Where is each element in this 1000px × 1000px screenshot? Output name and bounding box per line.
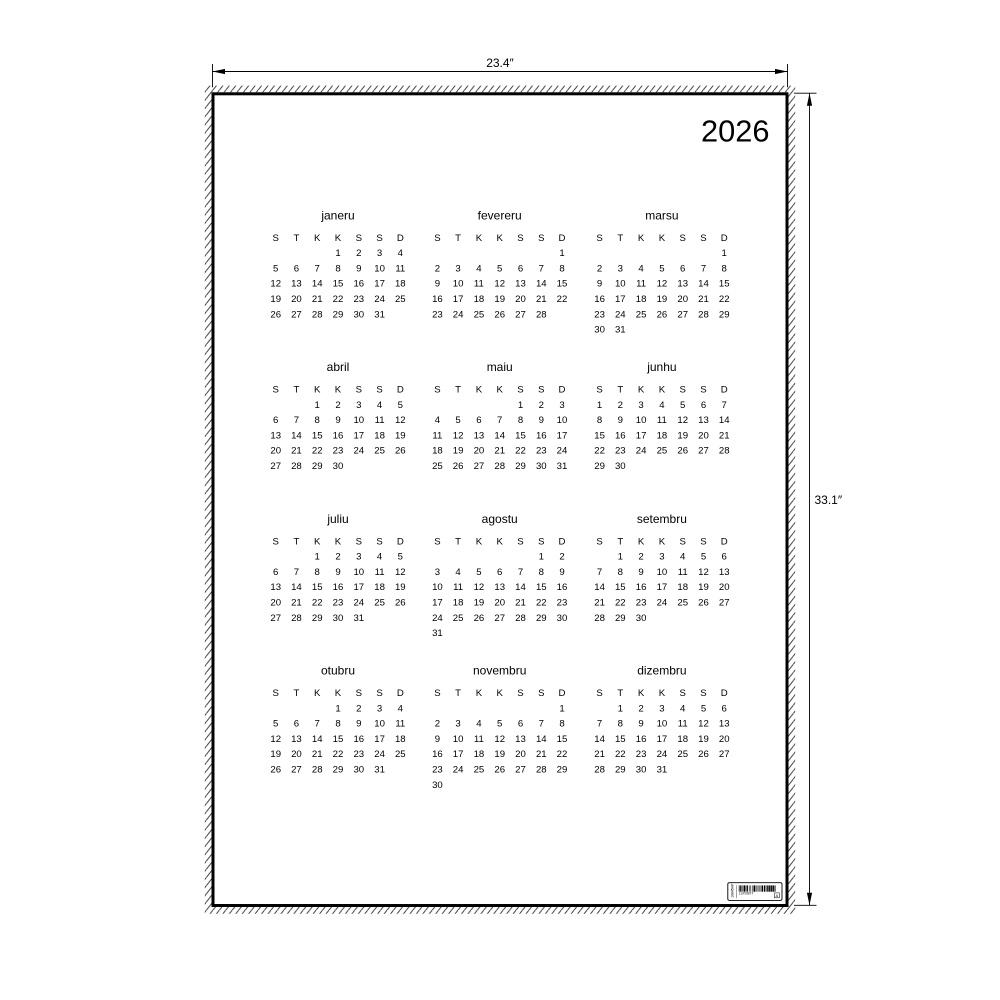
svg-text:juliu: juliu: [326, 512, 348, 526]
svg-text:L3XV8XT: L3XV8XT: [739, 892, 754, 896]
svg-text:31: 31: [432, 628, 443, 639]
svg-text:dizembru: dizembru: [637, 664, 686, 678]
svg-text:1: 1: [722, 248, 727, 259]
svg-text:janeru: janeru: [320, 208, 354, 222]
svg-text:33.1″: 33.1″: [815, 493, 843, 507]
svg-text:fevereru: fevereru: [478, 208, 522, 222]
svg-text:1: 1: [559, 248, 564, 259]
svg-text:setembru: setembru: [637, 512, 687, 526]
svg-text:23.4″: 23.4″: [486, 56, 514, 70]
svg-text:282930: 282930: [594, 613, 646, 624]
svg-text:novembru: novembru: [473, 664, 526, 678]
svg-text:30: 30: [432, 780, 443, 791]
svg-text:1: 1: [559, 703, 564, 714]
svg-text:2026: 2026: [701, 114, 770, 149]
svg-text:junhu: junhu: [646, 360, 676, 374]
svg-text:otubru: otubru: [321, 664, 355, 678]
svg-text:marsu: marsu: [645, 208, 678, 222]
svg-text:16845HP: 16845HP: [731, 883, 735, 898]
svg-text:agostu: agostu: [482, 512, 518, 526]
svg-text:maiu: maiu: [487, 360, 513, 374]
svg-text:abril: abril: [327, 360, 350, 374]
